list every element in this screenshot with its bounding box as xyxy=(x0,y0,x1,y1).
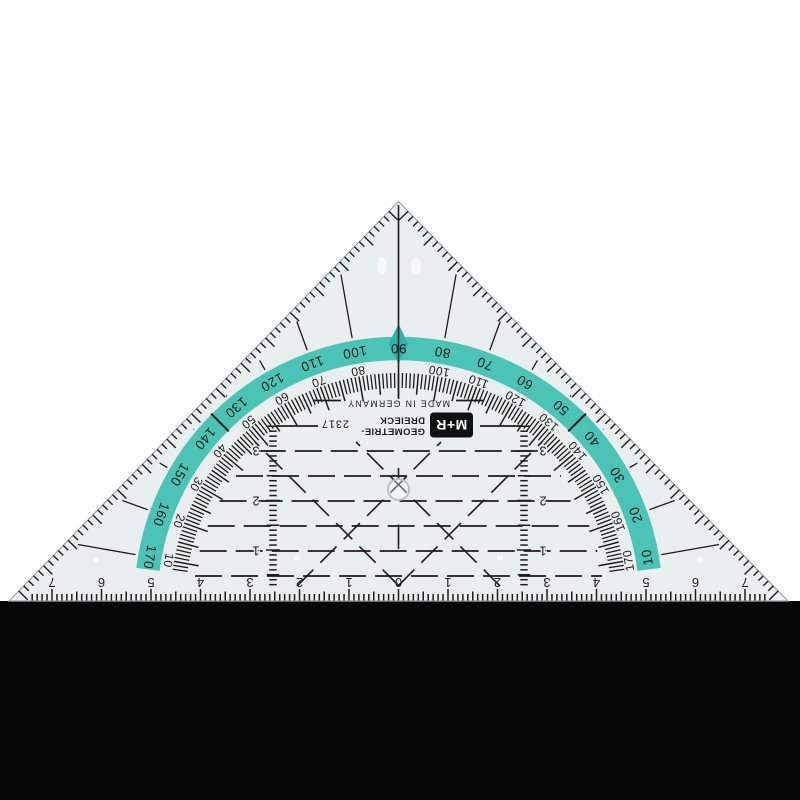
model-number: 2317 xyxy=(321,418,349,430)
ruler-cm-number: 7 xyxy=(48,575,55,590)
product-name-line2: DREIECK xyxy=(379,415,425,426)
outer-degree-label: 80 xyxy=(433,344,452,362)
degree-tick xyxy=(406,373,407,388)
ruler-cm-number: 7 xyxy=(741,575,748,590)
degree-tick xyxy=(387,373,388,388)
product-name-line1: GEOMETRIE- xyxy=(361,426,425,437)
molding-nub xyxy=(497,555,503,561)
degree-tick xyxy=(410,373,411,388)
ruler-cm-number: 6 xyxy=(692,575,699,590)
inner-degree-label: 10 xyxy=(160,552,176,568)
outer-degree-label: 90 xyxy=(390,341,406,356)
parallel-line-label-left: 2 xyxy=(252,494,259,508)
parallel-line-label-left: 1 xyxy=(252,544,259,558)
ruler-cm-number: 5 xyxy=(642,575,649,590)
product-photo: 1020304050607080901001101201301401501601… xyxy=(0,0,800,800)
inner-degree-label: 80 xyxy=(350,363,366,379)
radial-50-deg xyxy=(570,395,571,396)
molding-nub xyxy=(377,257,387,275)
ruler-cm-number: 3 xyxy=(543,575,550,590)
ruler-cm-number: 6 xyxy=(98,575,105,590)
molding-nub xyxy=(697,557,703,563)
molding-nub xyxy=(411,257,421,275)
base-shadow-band xyxy=(0,601,800,800)
outer-degree-label: 10 xyxy=(638,548,656,567)
parallel-line-label-right: 1 xyxy=(539,544,546,558)
molding-nub xyxy=(294,555,300,561)
center-hole xyxy=(388,479,409,500)
degree-tick xyxy=(391,373,392,388)
ruler-cm-number: 5 xyxy=(147,575,154,590)
radial-130-deg xyxy=(226,395,227,396)
ruler-cm-number: 4 xyxy=(593,575,600,590)
ruler-cm-number: 0 xyxy=(395,575,402,590)
ruler-cm-number: 2 xyxy=(494,575,501,590)
ruler-cm-number: 1 xyxy=(345,575,352,590)
ruler-cm-number: 4 xyxy=(197,575,204,590)
molding-nub xyxy=(93,557,99,563)
mr-logo-text: M+R xyxy=(436,417,467,433)
origin-text: MADE IN GERMANY xyxy=(347,399,450,409)
parallel-line-label-right: 3 xyxy=(539,444,546,458)
parallel-line-label-right: 2 xyxy=(539,494,546,508)
geo-triangle-scene: 1020304050607080901001101201301401501601… xyxy=(0,0,800,800)
ruler-cm-number: 2 xyxy=(296,575,303,590)
ruler-cm-number: 3 xyxy=(246,575,253,590)
ruler-cm-number: 1 xyxy=(444,575,451,590)
